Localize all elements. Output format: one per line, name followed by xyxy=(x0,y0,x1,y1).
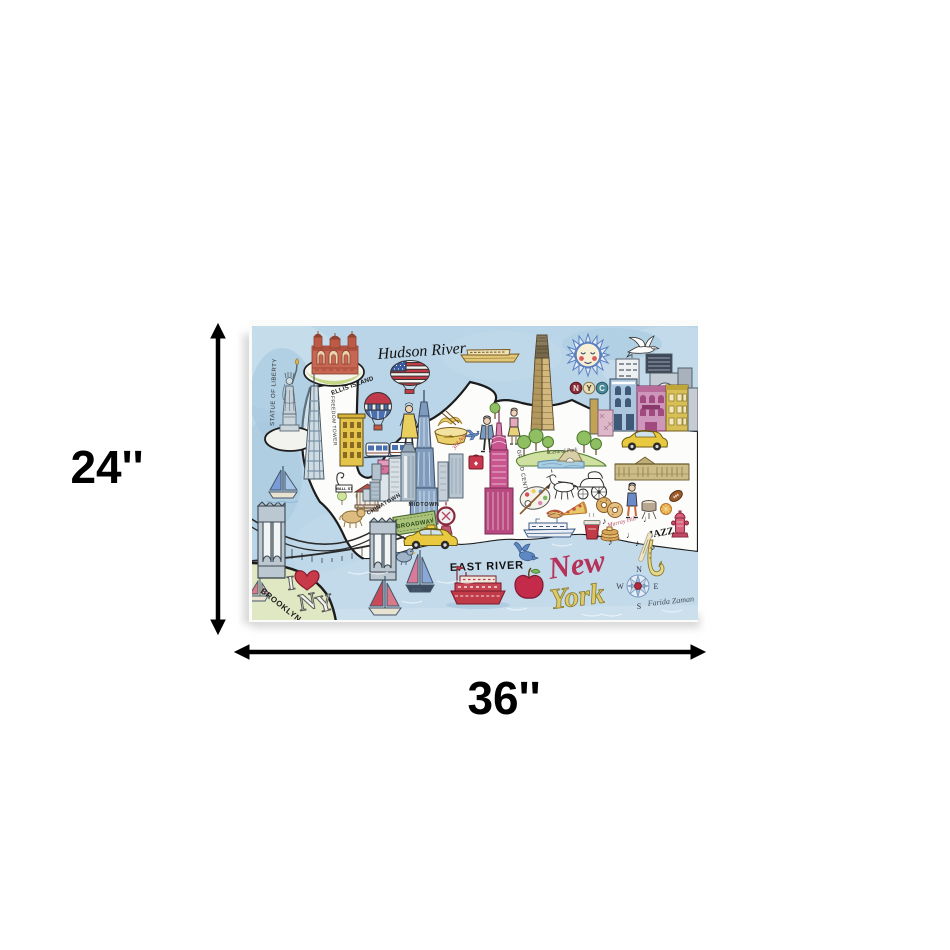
svg-text:♩: ♩ xyxy=(626,530,635,540)
svg-text:W: W xyxy=(616,582,624,591)
svg-text:WALL ST: WALL ST xyxy=(335,486,353,491)
svg-text:NYC: NYC xyxy=(412,587,422,592)
svg-text:S: S xyxy=(637,602,641,611)
svg-text:C: C xyxy=(599,384,605,393)
svg-text:♩: ♩ xyxy=(596,530,605,540)
svg-text:36'': 36'' xyxy=(467,672,540,724)
svg-text:MIDTOWN: MIDTOWN xyxy=(409,502,440,508)
svg-text:York: York xyxy=(548,577,607,615)
svg-text:Y: Y xyxy=(586,384,592,393)
svg-text:♪: ♪ xyxy=(608,537,613,547)
svg-text:N: N xyxy=(573,384,579,393)
svg-text:♩: ♩ xyxy=(643,514,652,524)
svg-text:N: N xyxy=(636,565,642,574)
svg-text:E: E xyxy=(654,582,659,591)
svg-text:♪: ♪ xyxy=(602,516,607,526)
svg-text:24'': 24'' xyxy=(70,441,143,493)
svg-text:♪: ♪ xyxy=(635,538,640,548)
